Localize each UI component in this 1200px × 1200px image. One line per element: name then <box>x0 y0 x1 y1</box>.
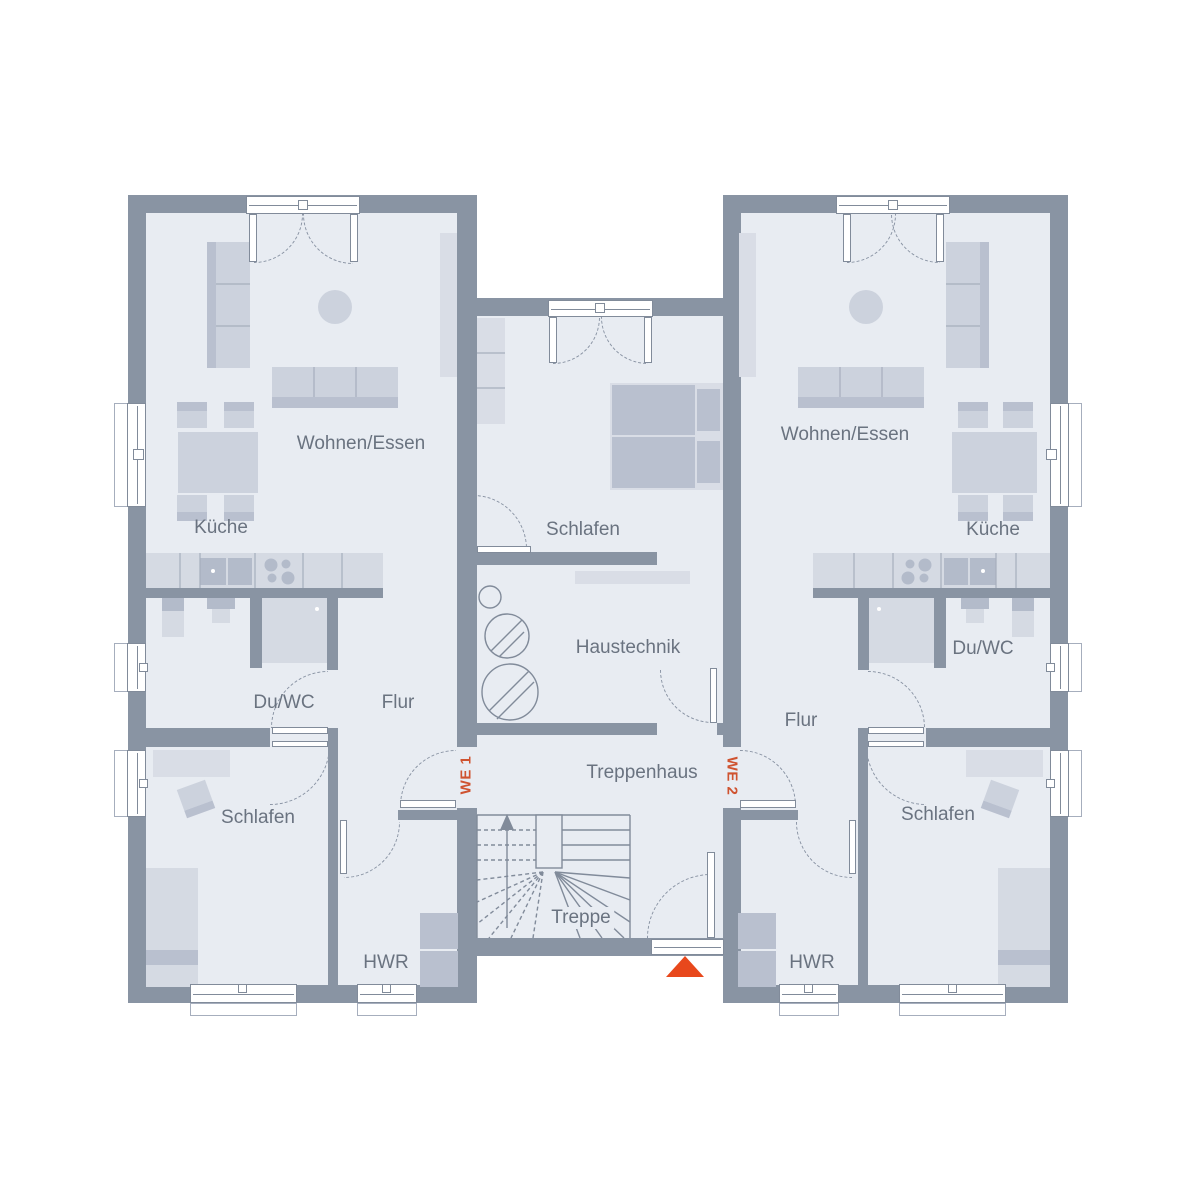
fixture-dots <box>211 569 985 611</box>
room-label-kueche-we2: Küche <box>966 519 1020 541</box>
window-sill <box>899 1003 1006 1016</box>
door-leaf <box>868 741 924 747</box>
window-sill <box>114 403 128 507</box>
room-label-wohnen-essen-we2: Wohnen/Essen <box>781 424 910 446</box>
window-handle <box>948 984 957 993</box>
door-leaf <box>350 214 358 262</box>
door-leaf <box>868 727 924 734</box>
window-sill <box>1068 403 1082 507</box>
room-label-treppenhaus: Treppenhaus <box>586 762 697 784</box>
door-leaf <box>644 317 652 363</box>
window-handle <box>1046 663 1055 672</box>
window-handle <box>804 984 813 993</box>
window-handle <box>139 663 148 672</box>
door-leaf <box>272 741 328 747</box>
room-label-flur-we2: Flur <box>785 710 818 732</box>
stove-icon <box>265 559 932 585</box>
door-leaf <box>936 214 944 262</box>
door-leaf <box>477 546 531 553</box>
room-label-duwc-we1: Du/WC <box>253 692 314 714</box>
unit-tag-we1: WE 1 <box>458 756 475 795</box>
room-label-treppe: Treppe <box>548 907 614 929</box>
window-sill <box>114 643 128 692</box>
door-handle <box>298 200 308 210</box>
room-label-hwr-we2: HWR <box>789 952 834 974</box>
door-leaf <box>549 317 557 363</box>
room-label-flur-we1: Flur <box>382 692 415 714</box>
entrance-threshold <box>651 939 724 955</box>
floor-plan: Wohnen/Essen Küche Du/WC Flur Schlafen H… <box>0 0 1200 1200</box>
door-leaf <box>249 214 257 262</box>
window-handle <box>133 449 144 460</box>
door-leaf <box>272 727 328 734</box>
window-sill <box>190 1003 297 1016</box>
apartment-door-leaf-we2 <box>740 800 796 808</box>
door-leaf <box>340 820 347 874</box>
door-handle <box>595 303 605 313</box>
room-label-schlafen-we1: Schlafen <box>221 807 295 829</box>
entrance-marker-icon <box>666 956 704 977</box>
window-handle <box>1046 779 1055 788</box>
window-sill <box>114 750 128 817</box>
apartment-door-leaf-we1 <box>400 800 456 808</box>
door-leaf <box>710 668 717 723</box>
window-handle <box>238 984 247 993</box>
entrance-door-leaf <box>707 852 715 938</box>
window-handle <box>382 984 391 993</box>
unit-tag-we2: WE 2 <box>724 757 741 796</box>
window-handle <box>139 779 148 788</box>
window-sill <box>1068 643 1082 692</box>
window-handle <box>1046 449 1057 460</box>
room-label-duwc-we2: Du/WC <box>952 638 1013 660</box>
plan-linework <box>0 0 1200 1200</box>
room-label-schlafen-center: Schlafen <box>546 519 620 541</box>
room-label-wohnen-essen-we1: Wohnen/Essen <box>297 433 426 455</box>
counter-divisions-we1 <box>180 553 342 588</box>
room-label-kueche-we1: Küche <box>194 517 248 539</box>
counter-divisions-we2 <box>854 553 1016 588</box>
window-sill <box>357 1003 417 1016</box>
door-handle <box>888 200 898 210</box>
room-label-hwr-we1: HWR <box>363 952 408 974</box>
room-label-haustechnik: Haustechnik <box>576 637 681 659</box>
room-label-schlafen-we2: Schlafen <box>901 804 975 826</box>
boiler-icons <box>479 586 538 720</box>
door-leaf <box>843 214 851 262</box>
door-leaf <box>849 820 856 874</box>
window-sill <box>779 1003 839 1016</box>
window-sill <box>1068 750 1082 817</box>
